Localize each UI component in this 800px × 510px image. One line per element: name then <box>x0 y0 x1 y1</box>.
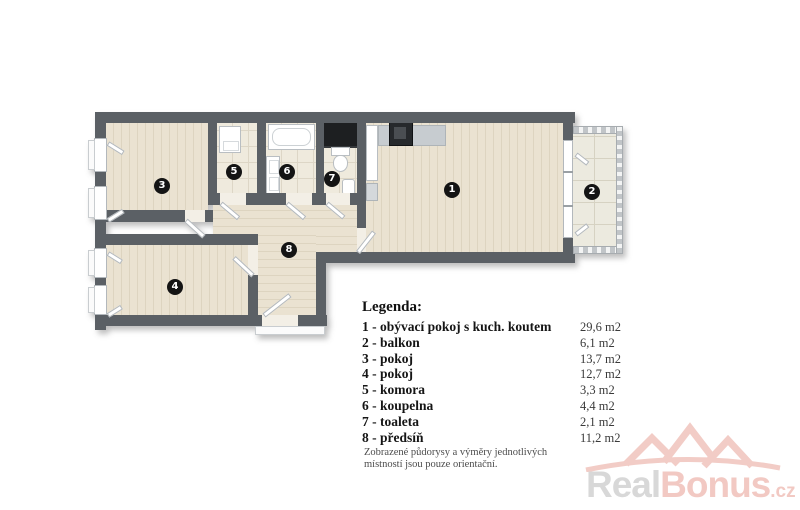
window-room4-b <box>94 285 107 315</box>
legend-row: 2 - balkon 6,1 m2 <box>362 335 628 351</box>
wordmark-bonus: Bonus <box>660 464 770 506</box>
stove-burner <box>394 127 406 139</box>
legend-room-area: 4,4 m2 <box>580 399 615 414</box>
window-sill-room3-b <box>88 188 95 218</box>
legend-room-name: 1 - obývací pokoj s kuch. koutem <box>362 319 580 335</box>
room-label-4: 4 <box>167 279 183 295</box>
window-sill-room4-b <box>88 287 95 313</box>
legend-row: 5 - komora 3,3 m2 <box>362 382 628 398</box>
disclaimer-line-2: místností jsou pouze orientační. <box>364 459 594 471</box>
disclaimer-line-1: Zobrazené půdorysy a výměry jednotlivých <box>364 447 594 459</box>
room-label-3: 3 <box>154 178 170 194</box>
legend-room-area: 13,7 m2 <box>580 352 621 367</box>
washing-machine-detail <box>223 141 239 151</box>
legend-row: 6 - koupelna 4,4 m2 <box>362 398 628 414</box>
room-label-2: 2 <box>584 184 600 200</box>
realbonus-wordmark: RealBonus.cz <box>586 464 796 506</box>
room-label-8: 8 <box>281 242 297 258</box>
entrance-step <box>255 326 325 335</box>
wall-room3-bottom-stub <box>205 210 213 222</box>
kitchen-sink-unit <box>366 183 378 201</box>
balcony-window-divider-2 <box>563 205 573 207</box>
wall-room4-top <box>95 234 258 245</box>
wall-hall-right <box>316 252 326 322</box>
legend-room-area: 3,3 m2 <box>580 383 615 398</box>
balcony-rail-right <box>616 126 623 254</box>
legend-room-name: 8 - předsíň <box>362 430 580 446</box>
wall-room1-left <box>357 112 366 228</box>
wall-div-3-5 <box>208 112 217 205</box>
legend-title: Legenda: <box>362 299 628 316</box>
room-label-5: 5 <box>226 164 242 180</box>
legend-room-name: 7 - toaleta <box>362 414 580 430</box>
bathtub-basin <box>272 128 311 146</box>
cabinet-drawer-1 <box>269 160 279 174</box>
legend-disclaimer: Zobrazené půdorysy a výměry jednotlivých… <box>364 447 594 472</box>
legend-room-area: 29,6 m2 <box>580 320 621 335</box>
bathtub-icon <box>268 124 315 150</box>
legend-room-name: 4 - pokoj <box>362 366 580 382</box>
room-label-1: 1 <box>444 182 460 198</box>
wordmark-cz: .cz <box>770 481 795 503</box>
legend-room-name: 6 - koupelna <box>362 398 580 414</box>
room-3-floor <box>106 123 208 211</box>
wall-div-6-7 <box>316 112 324 205</box>
legend-room-area: 6,1 m2 <box>580 336 615 351</box>
window-sill-room4-a <box>88 250 95 276</box>
room-label-7: 7 <box>324 171 340 187</box>
legend-row: 4 - pokoj 12,7 m2 <box>362 366 628 382</box>
wall-room1-bottom <box>316 252 575 263</box>
balcony-window-divider-1 <box>563 171 573 173</box>
window-room4-a <box>94 248 107 278</box>
legend-room-area: 12,7 m2 <box>580 367 621 382</box>
window-sill-room3-a <box>88 140 95 170</box>
wordmark-real: Real <box>586 464 660 506</box>
legend-room-name: 5 - komora <box>362 382 580 398</box>
window-room3-b <box>94 186 107 220</box>
door-opening-entrance <box>262 315 298 326</box>
hallway-floor-passage <box>316 234 357 252</box>
legend-room-name: 3 - pokoj <box>362 351 580 367</box>
legend-row: 3 - pokoj 13,7 m2 <box>362 351 628 367</box>
bathroom-cabinet-icon <box>266 156 280 194</box>
kitchen-tall-unit <box>366 125 378 181</box>
cabinet-drawer-2 <box>269 177 279 191</box>
stove-icon <box>389 122 413 146</box>
wall-div-5-6 <box>257 112 266 205</box>
toilet-bowl <box>333 155 348 172</box>
floor-plan-page: 1 2 3 4 5 6 7 8 Legenda: 1 - obývací pok… <box>0 0 800 510</box>
room-label-6: 6 <box>279 164 295 180</box>
washing-machine-icon <box>219 126 241 153</box>
balcony-door-window <box>563 140 573 238</box>
legend-room-name: 2 - balkon <box>362 335 580 351</box>
wall-top <box>95 112 575 123</box>
realbonus-watermark: RealBonus.cz <box>584 420 794 508</box>
window-room3-a <box>94 138 107 172</box>
legend-row: 1 - obývací pokoj s kuch. koutem 29,6 m2 <box>362 319 628 335</box>
